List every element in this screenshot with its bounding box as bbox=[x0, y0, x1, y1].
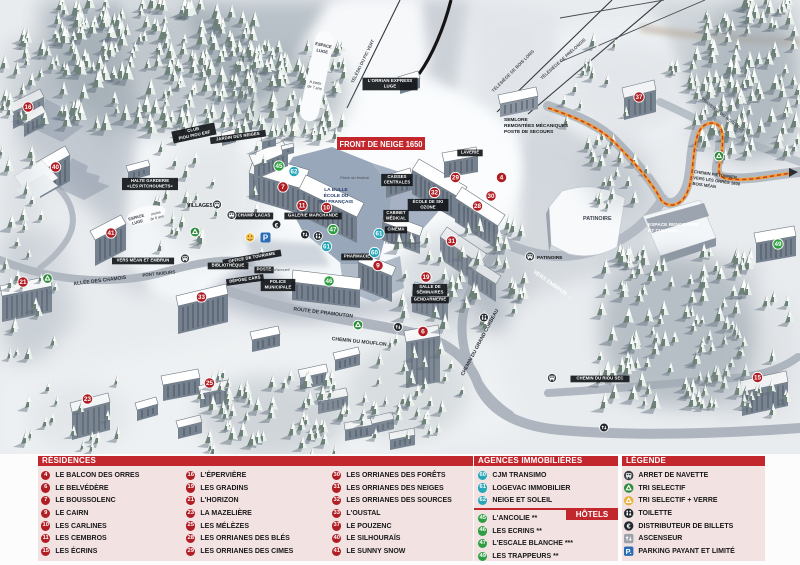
svg-text:Place du festival: Place du festival bbox=[340, 175, 369, 180]
svg-text:LAVERIE: LAVERIE bbox=[461, 150, 480, 155]
svg-text:VILLAGES: VILLAGES bbox=[187, 203, 213, 209]
svg-text:47: 47 bbox=[330, 227, 337, 234]
svg-text:«LES PITCHOUNETS»: «LES PITCHOUNETS» bbox=[127, 184, 173, 189]
svg-text:SEMLORE: SEMLORE bbox=[504, 117, 529, 123]
svg-text:19: 19 bbox=[423, 274, 430, 281]
svg-text:POSTE DE SECOURS: POSTE DE SECOURS bbox=[504, 129, 554, 135]
svg-text:OZONE: OZONE bbox=[420, 205, 435, 210]
svg-text:ÉCOLE DE SKI: ÉCOLE DE SKI bbox=[413, 199, 444, 204]
svg-text:41: 41 bbox=[108, 230, 115, 237]
svg-text:MUNICIPALE: MUNICIPALE bbox=[265, 285, 292, 290]
svg-text:MÉDICAL: MÉDICAL bbox=[386, 216, 406, 221]
svg-text:33: 33 bbox=[198, 294, 205, 301]
svg-text:ESPACE RENCONTRE: ESPACE RENCONTRE bbox=[648, 222, 700, 228]
svg-text:31: 31 bbox=[448, 238, 455, 245]
svg-text:4: 4 bbox=[500, 175, 504, 182]
svg-text:CINÉMA: CINÉMA bbox=[387, 227, 404, 232]
svg-text:40: 40 bbox=[52, 164, 59, 171]
svg-text:CAISSES: CAISSES bbox=[387, 174, 406, 179]
svg-text:61: 61 bbox=[323, 244, 330, 251]
svg-text:46: 46 bbox=[326, 278, 333, 285]
svg-text:FRONT DE NEIGE 1650: FRONT DE NEIGE 1650 bbox=[340, 140, 424, 149]
svg-text:CHEMIN DU RIOU SEC: CHEMIN DU RIOU SEC bbox=[577, 376, 624, 381]
svg-text:SÉMINAIRES: SÉMINAIRES bbox=[416, 290, 443, 295]
svg-text:GENDARMERIE: GENDARMERIE bbox=[414, 297, 447, 302]
svg-text:LUGE: LUGE bbox=[384, 84, 397, 89]
svg-text:LA BULLE: LA BULLE bbox=[324, 187, 348, 193]
svg-text:PATINOIRE: PATINOIRE bbox=[537, 255, 563, 261]
svg-text:PHARMACIE: PHARMACIE bbox=[344, 254, 370, 259]
svg-text:9: 9 bbox=[376, 263, 380, 270]
svg-text:CHAMP LACAS: CHAMP LACAS bbox=[238, 213, 271, 218]
svg-text:60: 60 bbox=[371, 250, 378, 257]
svg-text:GALERIE MARCHANDE: GALERIE MARCHANDE bbox=[288, 213, 338, 218]
svg-text:PATINOIRE: PATINOIRE bbox=[583, 216, 612, 222]
svg-text:6: 6 bbox=[421, 329, 425, 336]
svg-text:L'ORRIAN EXPRESS: L'ORRIAN EXPRESS bbox=[368, 78, 413, 83]
svg-text:Place Émile Madout: Place Émile Madout bbox=[385, 240, 421, 245]
svg-text:BIBLIOTHÈQUE: BIBLIOTHÈQUE bbox=[212, 263, 245, 268]
svg-text:VERS MÉAN ET EMBRUN: VERS MÉAN ET EMBRUN bbox=[117, 258, 170, 263]
svg-text:P: P bbox=[263, 233, 268, 242]
svg-text:62: 62 bbox=[291, 169, 298, 176]
svg-text:Place d'accueil: Place d'accueil bbox=[263, 267, 290, 272]
svg-text:10: 10 bbox=[323, 205, 330, 212]
svg-text:37: 37 bbox=[636, 94, 643, 101]
svg-text:CENTRALES: CENTRALES bbox=[384, 180, 411, 185]
svg-text:21: 21 bbox=[20, 279, 27, 286]
svg-text:HALTE GARDERIE: HALTE GARDERIE bbox=[131, 178, 169, 183]
svg-text:29: 29 bbox=[452, 175, 459, 182]
svg-text:23: 23 bbox=[84, 396, 91, 403]
svg-text:15: 15 bbox=[754, 375, 761, 382]
svg-text:POLICE: POLICE bbox=[270, 279, 286, 284]
svg-text:7: 7 bbox=[281, 184, 285, 191]
svg-text:49: 49 bbox=[775, 241, 782, 248]
svg-text:11: 11 bbox=[299, 203, 306, 210]
svg-text:16: 16 bbox=[25, 104, 32, 111]
svg-text:45: 45 bbox=[276, 163, 283, 170]
svg-text:€: € bbox=[275, 222, 279, 229]
svg-text:30: 30 bbox=[488, 193, 495, 200]
svg-text:28: 28 bbox=[474, 203, 481, 210]
svg-text:25: 25 bbox=[206, 380, 213, 387]
svg-text:32: 32 bbox=[431, 190, 438, 197]
svg-text:SALLE DE: SALLE DE bbox=[419, 284, 441, 289]
svg-text:CABINET: CABINET bbox=[386, 210, 406, 215]
svg-text:61: 61 bbox=[376, 231, 383, 238]
svg-text:ET CULTURE: ET CULTURE bbox=[648, 228, 679, 234]
